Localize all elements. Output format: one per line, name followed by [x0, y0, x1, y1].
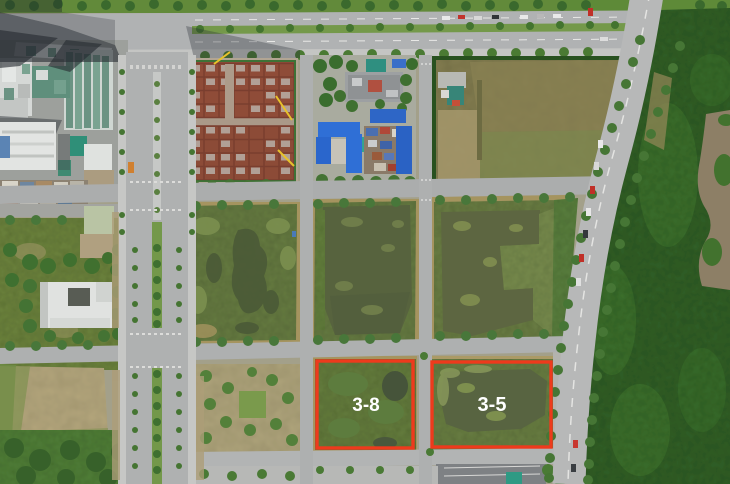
svg-text:3-8: 3-8	[352, 395, 379, 416]
svg-text:3-5: 3-5	[478, 394, 507, 416]
